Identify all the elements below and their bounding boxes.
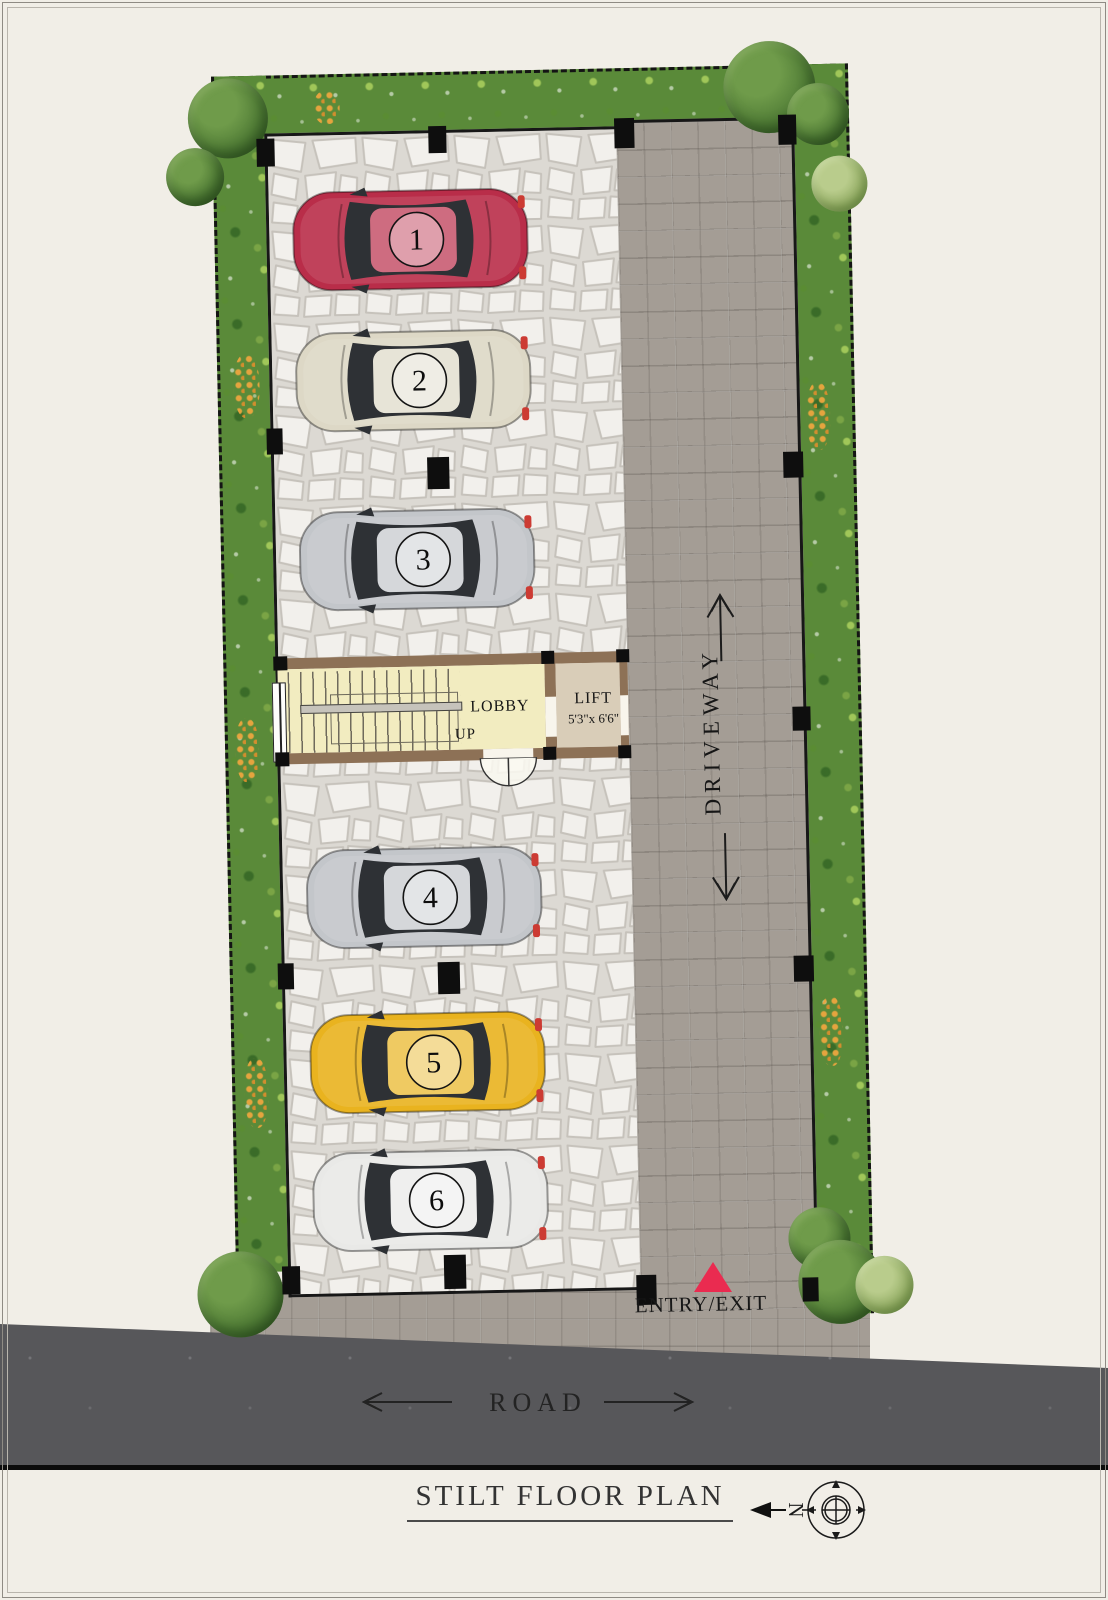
parking-spot-number: 1 [409,223,425,256]
wall-corner-block [273,656,287,670]
lift-door-opening-driveway [620,695,629,735]
column [794,955,815,981]
column [278,963,295,989]
column [438,962,461,994]
flower-cluster [806,382,831,450]
lift-door-opening [545,697,557,737]
tree-icon [811,155,868,212]
column [802,1277,818,1301]
lobby-label: LOBBY [470,697,530,716]
driveway-arrow-down-icon [707,829,745,904]
road-label: ROAD [468,1388,608,1418]
column [792,706,810,730]
road-edge-line [0,1465,1108,1470]
flower-cluster [233,354,260,419]
column [444,1255,467,1289]
entry-exit-label: ENTRY/EXIT [606,1290,796,1319]
parking-spot-number: 4 [422,881,438,914]
wall-corner-block [543,747,556,760]
flower-cluster [313,90,340,125]
stair-flight-outline [330,692,459,745]
stairs-up-label: UP [455,726,477,743]
car-4: 4 [303,840,545,955]
lobby-window [272,682,288,762]
parking-spot-number: 3 [415,543,431,576]
wall-corner-block [541,651,554,664]
wall-corner-block [275,752,289,766]
column [778,115,797,145]
wall-corner-block [616,649,629,662]
column [427,457,450,489]
flower-cluster [818,996,843,1066]
column [266,428,283,454]
car-3: 3 [296,502,538,617]
north-arrow-icon [750,1502,771,1518]
parking-spot-number: 5 [426,1046,442,1079]
tree-icon [197,1251,285,1339]
car-2: 2 [292,323,534,438]
drawing-title-text: STILT FLOOR PLAN [407,1480,732,1522]
site-plot: DRIVEWAY LOBBY UP LIFT 5'3"x 6'6" [203,55,877,1330]
compass-rose: N [744,1472,876,1548]
car-5: 5 [307,1005,549,1120]
double-door-swing-icon [479,757,538,789]
drawing-title: STILT FLOOR PLAN [398,1480,742,1522]
tree-icon [855,1255,914,1314]
road-arrow-right-icon [600,1390,704,1414]
driveway-label: DRIVEWAY [698,679,749,816]
column [614,118,635,148]
column [256,138,275,166]
flower-cluster [234,718,259,782]
wall-corner-block [618,745,631,758]
parking-spot-number: 2 [412,364,428,397]
flower-cluster [244,1058,269,1128]
car-6: 6 [309,1143,551,1258]
stilt-floor-plan-sheet: { "title": "STILT FLOOR PLAN", "north_la… [0,0,1108,1600]
lift-label: LIFT [557,689,629,709]
parking-spot-number: 6 [429,1184,445,1217]
car-1: 1 [289,182,531,297]
column [282,1266,301,1294]
entry-marker-triangle [694,1262,732,1292]
column [428,126,447,153]
road-arrow-left-icon [352,1390,456,1414]
column [783,451,804,477]
lobby-block: LOBBY UP LIFT 5'3"x 6'6" [275,651,629,764]
